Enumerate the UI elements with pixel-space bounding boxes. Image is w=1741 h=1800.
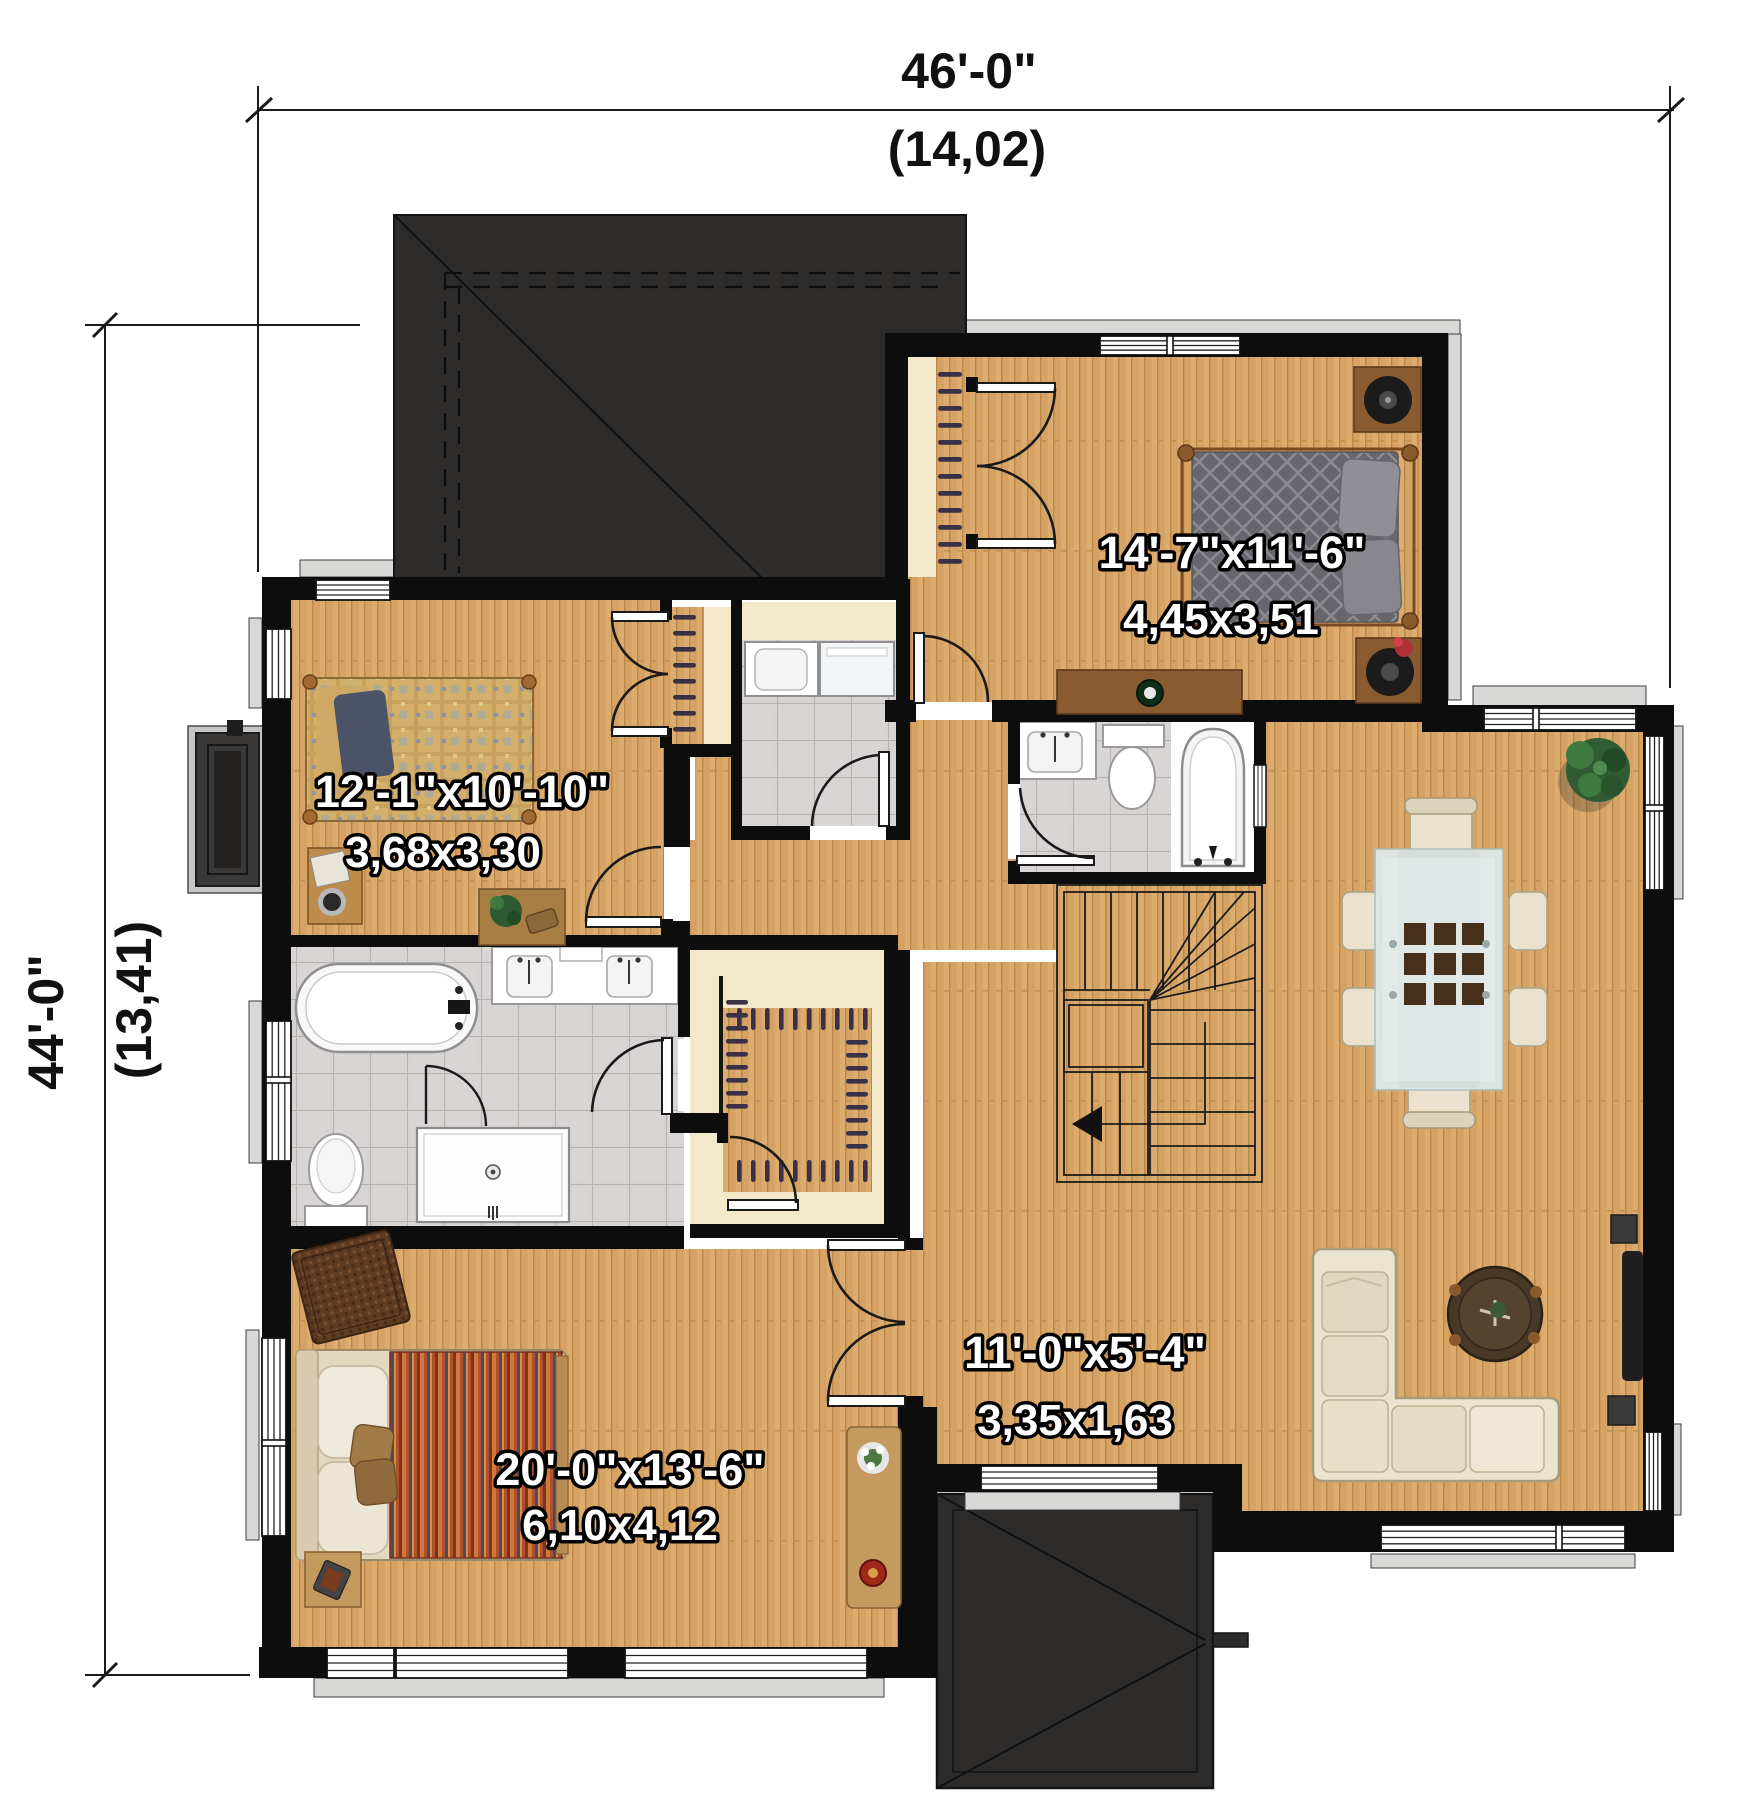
svg-text:20'-0"x13'-6": 20'-0"x13'-6" <box>495 1444 764 1495</box>
svg-text:44'-0": 44'-0" <box>18 954 74 1090</box>
svg-text:46'-0": 46'-0" <box>901 43 1037 99</box>
svg-text:(13,41): (13,41) <box>106 921 162 1079</box>
svg-text:4,45x3,51: 4,45x3,51 <box>1123 595 1319 644</box>
svg-text:6,10x4,12: 6,10x4,12 <box>522 1501 718 1550</box>
svg-text:3,68x3,30: 3,68x3,30 <box>345 828 541 877</box>
svg-text:12'-1"x10'-10": 12'-1"x10'-10" <box>315 766 609 817</box>
svg-text:3,35x1,63: 3,35x1,63 <box>977 1396 1173 1445</box>
svg-text:(14,02): (14,02) <box>888 121 1046 177</box>
svg-text:11'-0"x5'-4": 11'-0"x5'-4" <box>964 1327 1206 1378</box>
svg-text:14'-7"x11'-6": 14'-7"x11'-6" <box>1099 527 1366 578</box>
